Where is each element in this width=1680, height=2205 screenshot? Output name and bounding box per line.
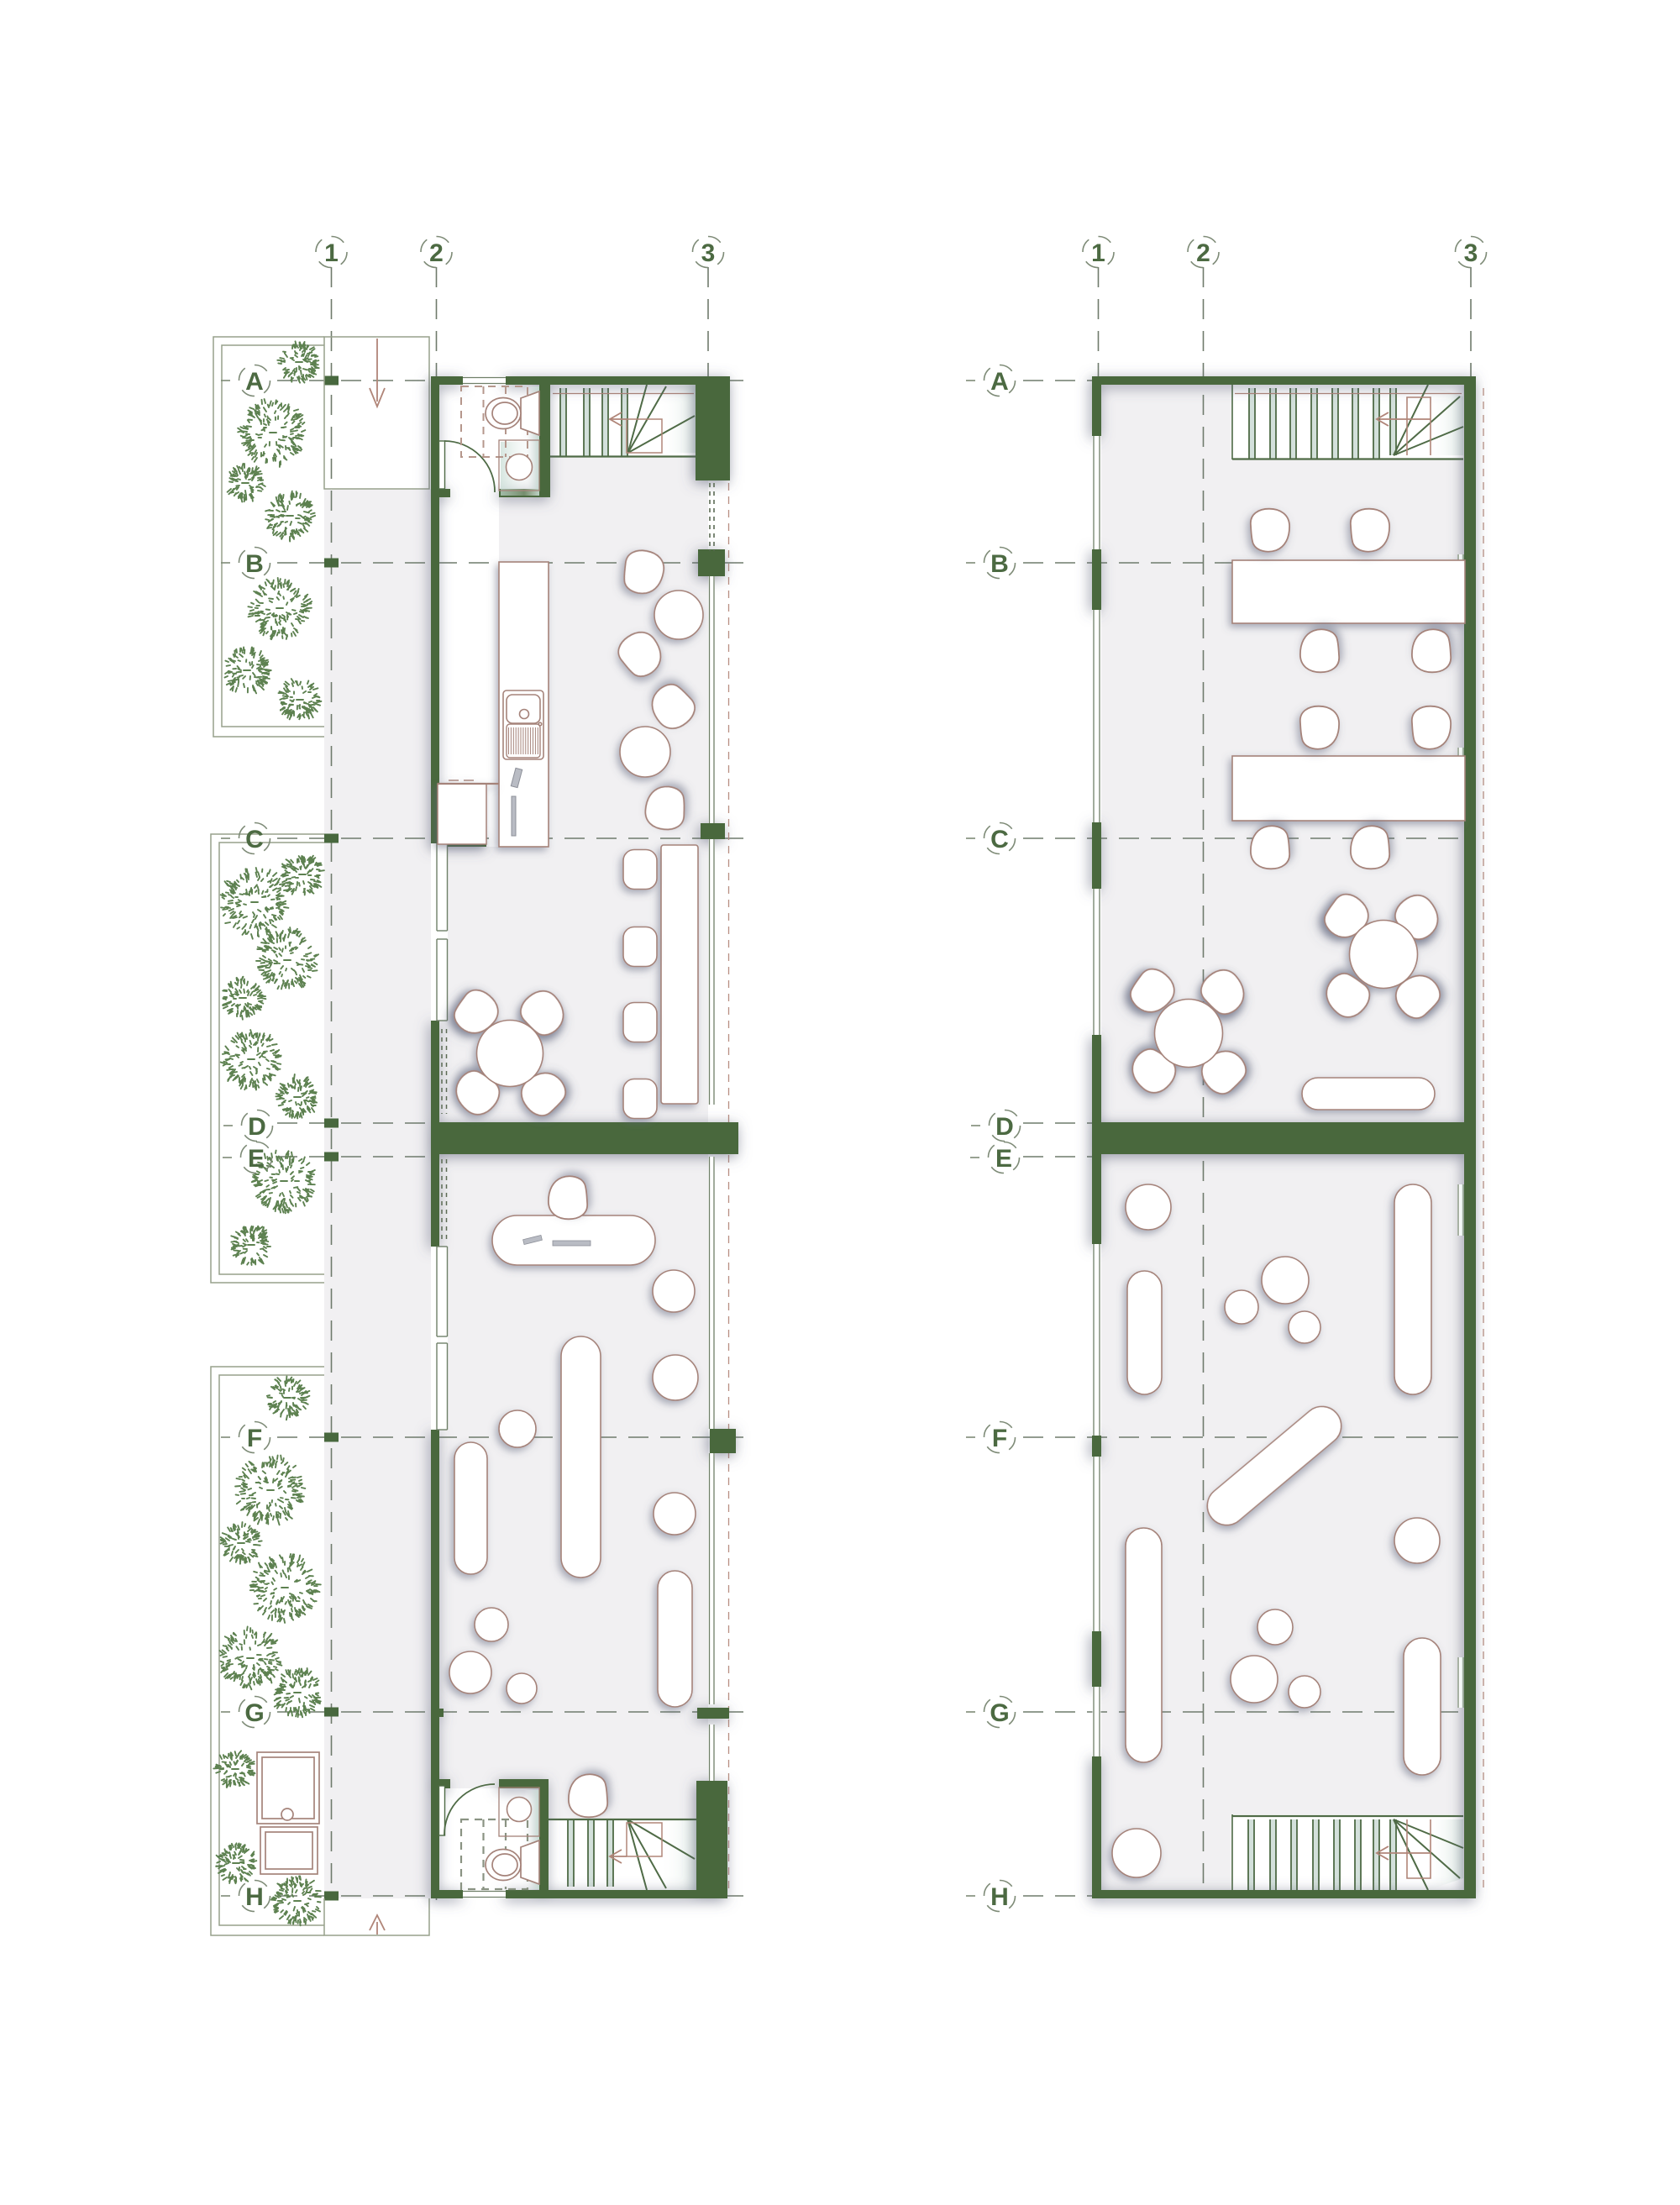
svg-text:1: 1 xyxy=(1091,239,1105,267)
svg-text:2: 2 xyxy=(1196,239,1210,267)
svg-text:3: 3 xyxy=(1464,239,1478,267)
svg-text:C: C xyxy=(990,826,1009,853)
svg-text:E: E xyxy=(248,1145,265,1173)
svg-text:B: B xyxy=(990,550,1009,578)
svg-text:A: A xyxy=(990,368,1009,396)
svg-text:F: F xyxy=(247,1425,262,1452)
svg-text:1: 1 xyxy=(324,239,339,267)
svg-text:F: F xyxy=(992,1425,1007,1452)
svg-text:D: D xyxy=(248,1113,266,1141)
svg-text:3: 3 xyxy=(701,239,716,267)
svg-text:B: B xyxy=(245,550,264,578)
svg-text:A: A xyxy=(245,368,264,396)
svg-text:G: G xyxy=(990,1699,1009,1727)
svg-text:C: C xyxy=(245,826,264,853)
svg-text:G: G xyxy=(244,1699,264,1727)
svg-text:E: E xyxy=(995,1145,1012,1173)
svg-text:2: 2 xyxy=(429,239,444,267)
svg-text:H: H xyxy=(245,1883,264,1911)
svg-text:H: H xyxy=(990,1883,1009,1911)
svg-text:D: D xyxy=(995,1113,1014,1141)
